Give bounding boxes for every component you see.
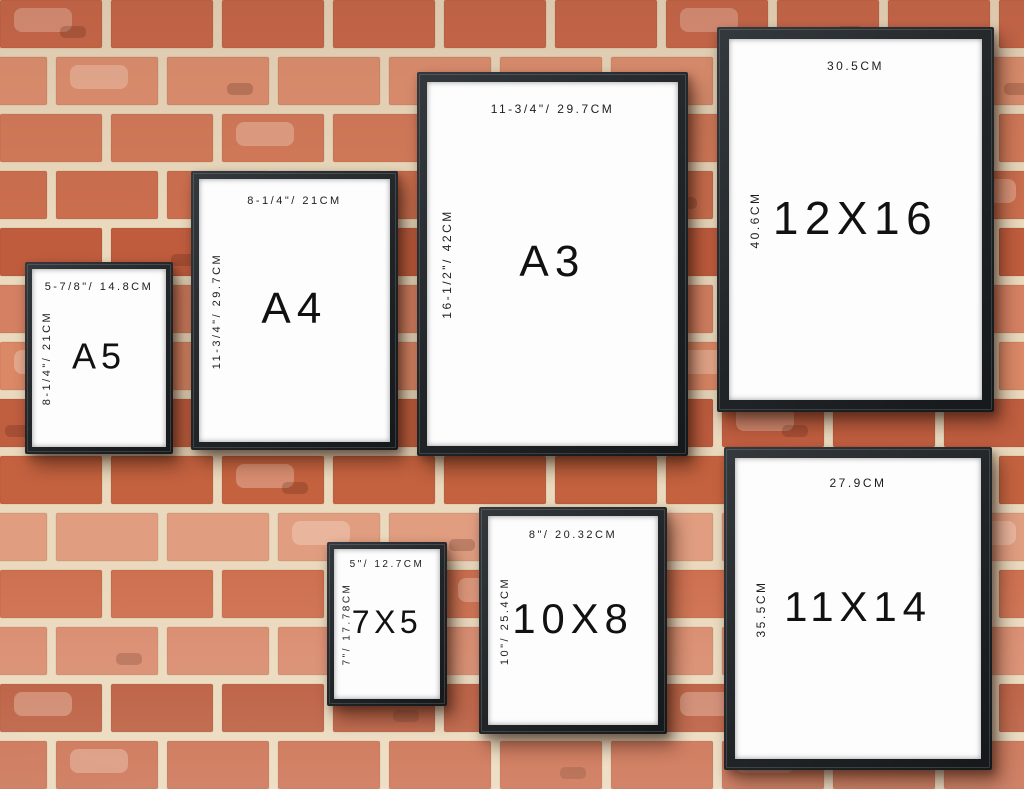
width-dimension-label-a3: 11-3/4"/ 29.7CM	[427, 102, 678, 116]
frame-mat-7x5: 5"/ 12.7CM7"/ 17.78CM7X5	[334, 549, 440, 699]
frame-mat-a3: 11-3/4"/ 29.7CM16-1/2"/ 42CMA3	[427, 82, 678, 446]
frame-mat-11x14: 27.9CM35.5CM11X14	[735, 458, 981, 759]
frame-size-name-11x14: 11X14	[735, 583, 981, 631]
frame-7x5: 5"/ 12.7CM7"/ 17.78CM7X5	[327, 542, 447, 706]
width-dimension-label-12x16: 30.5CM	[729, 59, 982, 73]
width-dimension-label-7x5: 5"/ 12.7CM	[334, 559, 440, 570]
frame-a3: 11-3/4"/ 29.7CM16-1/2"/ 42CMA3	[417, 72, 688, 456]
frame-12x16: 30.5CM40.6CM12X16	[717, 27, 994, 412]
frame-mat-10x8: 8"/ 20.32CM10"/ 25.4CM10X8	[488, 516, 658, 725]
frame-size-name-12x16: 12X16	[729, 190, 982, 244]
frame-size-name-a5: A5	[32, 335, 166, 377]
frame-mat-a4: 8-1/4"/ 21CM11-3/4"/ 29.7CMA4	[199, 179, 390, 442]
width-dimension-label-a4: 8-1/4"/ 21CM	[199, 195, 390, 207]
frame-a5: 5-7/8"/ 14.8CM8-1/4"/ 21CMA5	[25, 262, 173, 454]
frame-size-name-7x5: 7X5	[334, 604, 440, 641]
frame-10x8: 8"/ 20.32CM10"/ 25.4CM10X8	[479, 507, 667, 734]
frame-mat-12x16: 30.5CM40.6CM12X16	[729, 39, 982, 400]
frame-mat-a5: 5-7/8"/ 14.8CM8-1/4"/ 21CMA5	[32, 269, 166, 447]
frame-size-name-10x8: 10X8	[488, 595, 658, 643]
frame-a4: 8-1/4"/ 21CM11-3/4"/ 29.7CMA4	[191, 171, 398, 450]
picture-frames-layer: 5-7/8"/ 14.8CM8-1/4"/ 21CMA58-1/4"/ 21CM…	[0, 0, 1024, 789]
frame-size-name-a4: A4	[199, 284, 390, 334]
frame-size-name-a3: A3	[427, 237, 678, 287]
width-dimension-label-a5: 5-7/8"/ 14.8CM	[32, 281, 166, 293]
width-dimension-label-11x14: 27.9CM	[735, 476, 981, 490]
frame-11x14: 27.9CM35.5CM11X14	[724, 447, 992, 770]
width-dimension-label-10x8: 8"/ 20.32CM	[488, 529, 658, 541]
